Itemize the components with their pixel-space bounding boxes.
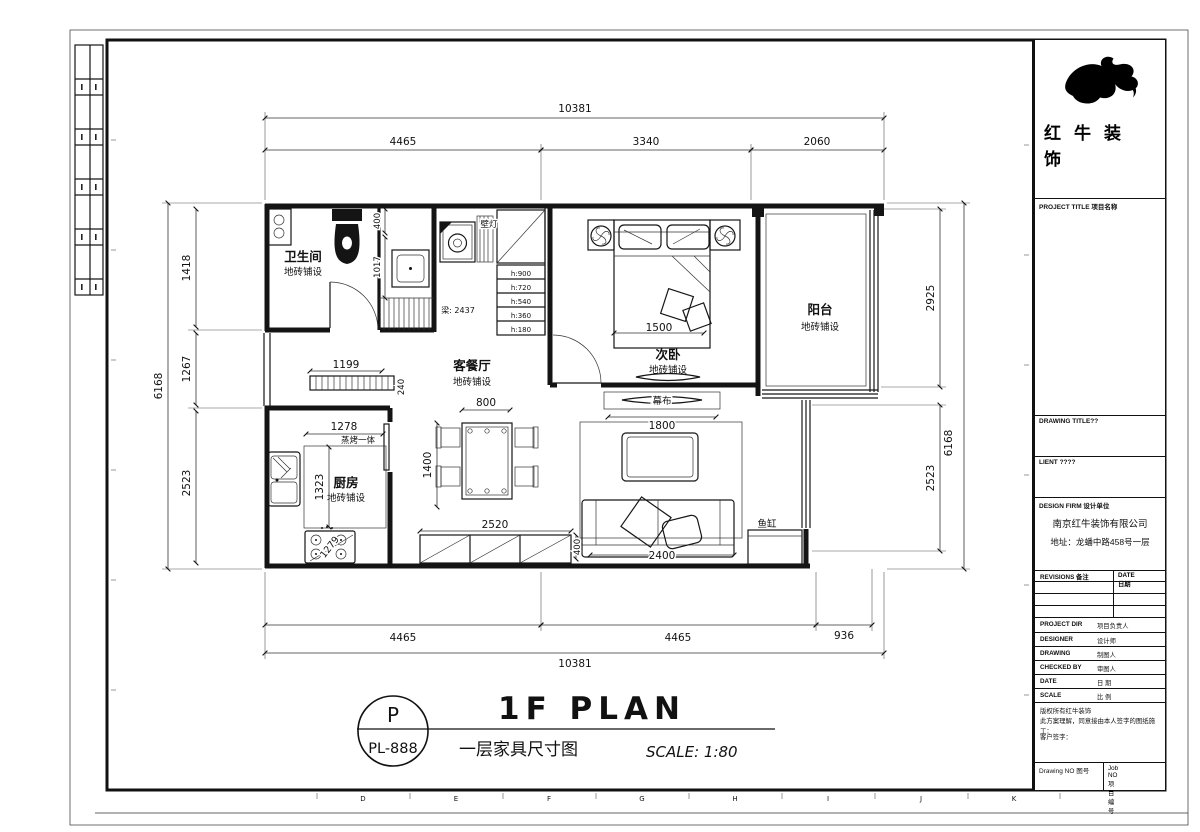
row-label-en: DESIGNER	[1040, 636, 1073, 643]
revision-row	[1035, 593, 1165, 605]
hall-cabinet	[310, 376, 394, 390]
dim: 2925	[925, 285, 937, 312]
row-label-cn: 设计师	[1097, 636, 1116, 645]
row-label-en: DATE	[1040, 678, 1057, 685]
stair-step-label: h:540	[511, 298, 531, 306]
row-label-en: SCALE	[1040, 692, 1061, 699]
washing-machine	[440, 222, 475, 262]
stair-step-label: h:720	[511, 284, 531, 292]
dim: 4465	[390, 632, 417, 644]
fan-symbol	[591, 226, 611, 246]
balcony: 阳台 地砖铺设	[801, 302, 840, 333]
dim: 1017	[373, 256, 383, 278]
fan-symbol	[715, 226, 735, 246]
shoe-cabinet	[420, 535, 571, 563]
dim: 2400	[649, 550, 676, 562]
designer-row: DESIGNER 设计师	[1035, 632, 1165, 646]
grid-letter: H	[732, 795, 737, 803]
room-label-living-dining: 客餐厅	[452, 358, 491, 373]
dim: 240	[397, 379, 407, 395]
grid-letter: K	[1012, 795, 1017, 803]
dim: 1800	[649, 420, 676, 432]
firm-address: 地址：龙蟠中路458号一层	[1035, 536, 1165, 548]
design-firm-label: DESIGN FIRM 设计单位	[1039, 500, 1109, 510]
dim: 2523	[181, 470, 193, 497]
floor-plan-drawing: D E F G H I J K	[0, 0, 1200, 832]
dim: 2523	[925, 465, 937, 492]
dim: 1278	[331, 421, 358, 433]
dim: 800	[476, 397, 496, 409]
project-title-section: PROJECT TITLE 项目名称	[1035, 198, 1165, 415]
drawing-title-label: DRAWING TITLE??	[1039, 418, 1098, 425]
firm-name: 南京红牛装饰有限公司	[1035, 516, 1165, 530]
dim: 400	[573, 539, 583, 555]
bedroom: 次卧 地砖铺设	[588, 220, 740, 381]
stair-step-label: h:360	[511, 312, 531, 320]
walls	[264, 204, 884, 568]
revision-row	[1035, 581, 1165, 593]
dim: 1199	[333, 359, 360, 371]
design-firm-section: DESIGN FIRM 设计单位 南京红牛装饰有限公司 地址：龙蟠中路458号一…	[1035, 497, 1165, 570]
dim: 1418	[181, 255, 193, 282]
dim: 4465	[665, 632, 692, 644]
company-name: 红牛装饰	[1044, 121, 1156, 172]
steam-oven-note: 蒸烤一体	[341, 435, 376, 446]
dim-left-overall: 6168	[153, 373, 165, 400]
row-label-en: PROJECT DIR	[1040, 621, 1082, 628]
scale-row: SCALE 比 例	[1035, 688, 1165, 702]
dim: 1400	[422, 452, 434, 479]
disclaimer-line: 客户签字：	[1040, 733, 1162, 743]
row-label-cn: 制图人	[1097, 650, 1116, 659]
drawing-sheet: D E F G H I J K	[0, 0, 1200, 832]
row-label-cn: 审图人	[1097, 664, 1116, 673]
beam-note: 梁: 2437	[441, 306, 475, 315]
screen-label: 幕布	[652, 395, 671, 407]
company-logo-area: 红牛装饰	[1035, 40, 1165, 198]
row-label-cn: 比 例	[1097, 692, 1111, 701]
stairs: h:900 h:720 h:540 h:360 h:180	[497, 265, 545, 335]
finish-label: 地砖铺设	[284, 266, 323, 278]
dim: 1323	[314, 474, 326, 501]
room-label-bedroom: 次卧	[655, 347, 681, 362]
row-label-en: CHECKED BY	[1040, 664, 1082, 671]
stair-step-label: h:900	[511, 270, 531, 278]
finish-label: 地砖铺设	[801, 321, 840, 333]
registration-strip	[75, 45, 103, 295]
room-label-bathroom: 卫生间	[284, 249, 322, 264]
room-label-balcony: 阳台	[807, 302, 832, 317]
laundry-closet	[379, 250, 434, 330]
client-section: LIENT ????	[1035, 456, 1165, 497]
drawing-row: DRAWING 制图人	[1035, 646, 1165, 660]
dining-chairs	[436, 427, 538, 487]
grid-letters: D E F G H I J K	[317, 793, 1060, 803]
row-label-cn: 日 期	[1097, 678, 1111, 687]
grid-letter: G	[639, 795, 644, 803]
fish-tank	[748, 530, 802, 564]
drawing-title-section: DRAWING TITLE??	[1035, 415, 1165, 456]
room-label-kitchen: 厨房	[333, 475, 358, 490]
dim: 400	[373, 213, 383, 229]
client-label: LIENT ????	[1039, 459, 1075, 466]
fish-tank-label: 鱼缸	[757, 518, 777, 530]
finish-label: 地砖铺设	[453, 376, 492, 388]
dining-area: 客餐厅 地砖铺设	[436, 358, 538, 499]
checked-by-row: CHECKED BY 审图人	[1035, 660, 1165, 674]
grid-letter: I	[827, 795, 829, 803]
row-label-cn: 项目负责人	[1097, 621, 1128, 630]
dim: 2520	[482, 519, 509, 531]
row-label-en: DRAWING	[1040, 650, 1070, 657]
title-block: 红牛装饰 PROJECT TITLE 项目名称 DRAWING TITLE?? …	[1032, 40, 1165, 790]
project-dir-row: PROJECT DIR 项目负责人	[1035, 617, 1165, 632]
dimension-lines	[168, 118, 964, 653]
plan-title-en: 1F PLAN	[498, 691, 686, 727]
grid-letter: D	[360, 795, 365, 803]
disclaimer-line: 版权所有红牛装饰	[1040, 707, 1162, 717]
dim: 1500	[646, 322, 673, 334]
stair-step-label: h:180	[511, 326, 531, 334]
living-room: 幕布 鱼缸	[420, 392, 802, 564]
dim: 2060	[804, 136, 831, 148]
grid-letter: J	[919, 795, 922, 803]
dim: 936	[834, 630, 854, 642]
dim: 4465	[390, 136, 417, 148]
disclaimer-section: 版权所有红牛装饰 此方案理解，同意接由本人签字的图纸施工： 客户签字：	[1035, 702, 1165, 762]
sheet-title: P PL-888 1F PLAN 一层家具尺寸图 SCALE: 1:80	[357, 691, 775, 766]
bathroom-door-swing	[330, 282, 378, 330]
extension-lines	[162, 112, 970, 659]
bull-logo-icon	[1055, 50, 1145, 112]
plan-scale: SCALE: 1:80	[646, 743, 738, 761]
revisions-label: REVISIONS 备注	[1040, 572, 1089, 581]
dim: 1267	[181, 356, 193, 383]
dim-right-overall: 6168	[943, 430, 955, 457]
sofa	[582, 497, 734, 557]
dim-bottom-overall: 10381	[558, 658, 591, 670]
finish-label: 地砖铺设	[327, 492, 366, 504]
revisions-header: REVISIONS 备注 DATE 日期	[1035, 570, 1165, 581]
sheet-number: PL-888	[368, 741, 417, 757]
toilet	[332, 209, 362, 264]
plan-title-cn: 一层家具尺寸图	[459, 740, 578, 760]
sheet-badge-letter: P	[387, 703, 399, 727]
date-row: DATE 日 期	[1035, 674, 1165, 688]
drawing-no-label: Drawing NO 图号	[1039, 765, 1089, 775]
project-title-label: PROJECT TITLE 项目名称	[1039, 201, 1117, 211]
dining-table	[462, 423, 512, 499]
dim-top-overall: 10381	[558, 103, 591, 115]
grid-letter: E	[454, 795, 458, 803]
bedroom-door-swing	[553, 335, 601, 383]
dim: 1279	[318, 535, 342, 561]
wall-lamp-label: 壁灯	[480, 219, 498, 230]
coffee-table	[622, 433, 698, 481]
kitchen-sink	[268, 452, 300, 506]
dim: 3340	[633, 136, 660, 148]
bathroom: 卫生间 地砖铺设	[267, 209, 362, 278]
finish-label: 地砖铺设	[649, 364, 688, 376]
job-no-label: Job NO 项目编号	[1108, 765, 1118, 815]
grid-letter: F	[547, 795, 551, 803]
rug	[580, 422, 742, 538]
fold-ticks	[111, 140, 1029, 695]
revision-row	[1035, 605, 1165, 617]
numbers-section: Drawing NO 图号 Job NO 项目编号	[1035, 762, 1165, 790]
